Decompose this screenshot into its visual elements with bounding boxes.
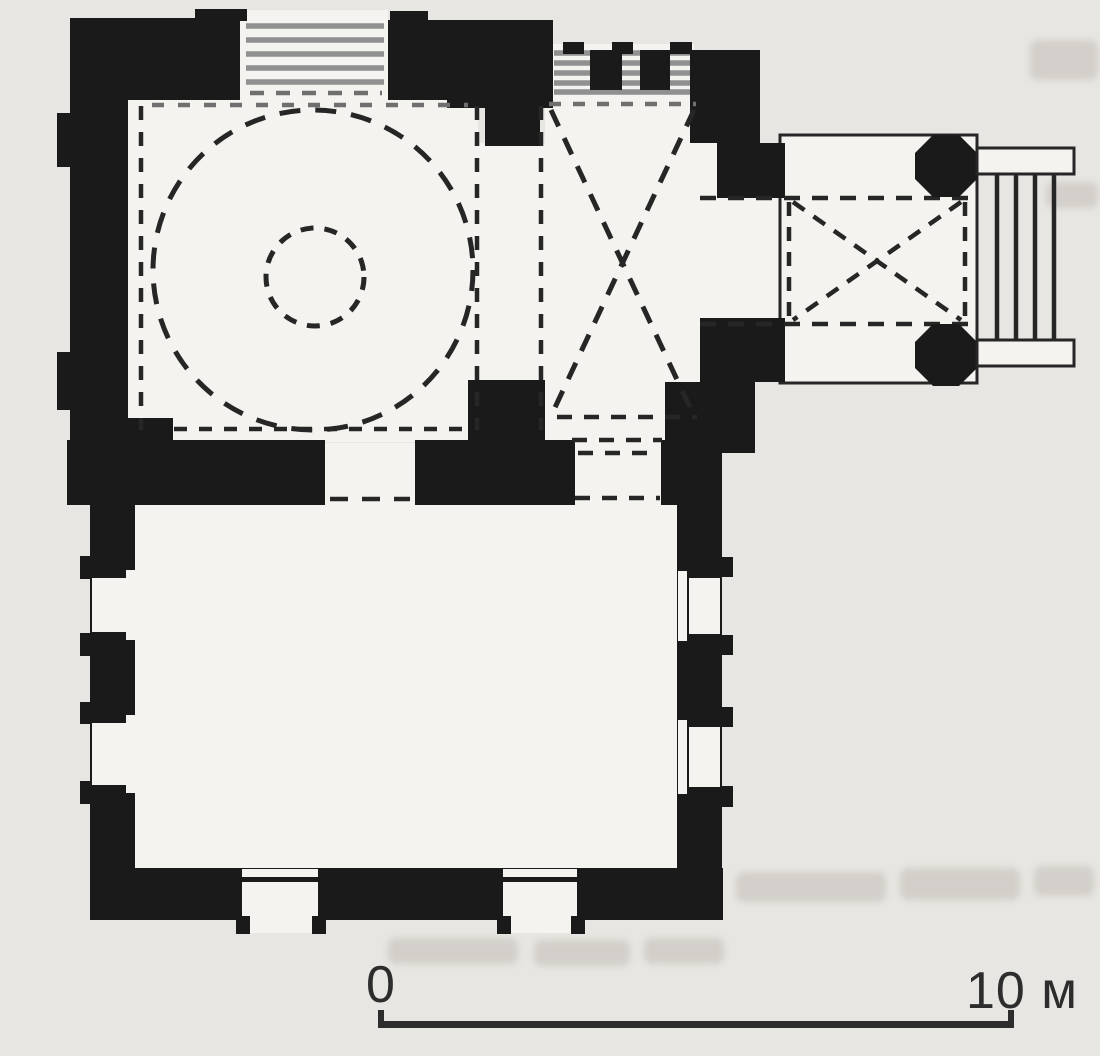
bleedthrough-smudge xyxy=(644,938,724,964)
east-window-recess xyxy=(689,578,720,634)
hall-west-buttress xyxy=(57,113,70,167)
octagonal-column xyxy=(915,135,977,197)
hall-west-buttress xyxy=(57,352,70,410)
portal-mullion xyxy=(640,50,670,90)
bleedthrough-smudge xyxy=(388,938,518,964)
south-doorway-lintel-line xyxy=(242,877,318,882)
bleedthrough-smudge xyxy=(900,868,1020,900)
west-buttress xyxy=(80,633,90,656)
west-buttress xyxy=(80,702,90,724)
bleedthrough-smudge xyxy=(1034,866,1094,896)
west-buttress xyxy=(80,781,90,804)
courtyard-east-wall-pier xyxy=(677,453,722,578)
scale-end-label: 10 м xyxy=(966,962,1078,1020)
east-buttress xyxy=(722,707,733,727)
hall-east-pier-upper xyxy=(485,104,540,146)
porch-northwest-block xyxy=(717,143,785,198)
portal-mullion xyxy=(590,50,622,90)
scanned-page: 0 10 м xyxy=(0,0,1100,1056)
scale-bar-line xyxy=(378,1021,1014,1028)
hall-north-wall-west xyxy=(70,18,240,100)
porch-southwest-block xyxy=(700,318,785,382)
south-band-center-pier xyxy=(445,440,575,505)
stair-cheek-north xyxy=(977,148,1074,174)
bleedthrough-smudge xyxy=(736,872,886,902)
hall-north-wall-tab xyxy=(195,9,247,21)
east-buttress xyxy=(722,557,733,577)
courtyard-north-doorway xyxy=(325,443,415,505)
west-arch-passage xyxy=(478,143,545,380)
east-buttress xyxy=(722,786,733,807)
courtyard-interior xyxy=(135,505,677,870)
floor-plan-drawing: 0 10 м xyxy=(0,0,1100,1056)
south-doorway-lintel-line xyxy=(503,877,577,882)
west-window-recess xyxy=(92,578,126,632)
portal-jamb-tab xyxy=(563,42,584,54)
hall-east-pier-lower xyxy=(468,380,545,444)
west-buttress xyxy=(80,556,90,579)
bleedthrough-smudge xyxy=(534,940,630,966)
octagonal-column xyxy=(915,324,977,386)
courtyard-west-wall xyxy=(90,503,135,898)
west-window-slit xyxy=(126,715,135,793)
courtyard-south-wall xyxy=(90,868,723,920)
hall-north-wall-tab xyxy=(390,11,428,23)
west-window-slit xyxy=(126,570,135,640)
scale-start-label: 0 xyxy=(366,956,396,1014)
south-doorway-jamb xyxy=(236,916,250,934)
west-window-recess xyxy=(92,723,126,785)
northeast-corner-wall xyxy=(690,50,760,143)
south-doorway-jamb xyxy=(497,916,511,934)
east-window-slit xyxy=(678,571,687,641)
domed-hall-interior xyxy=(128,100,478,442)
bleedthrough-smudge xyxy=(1030,40,1098,80)
portal-jamb-tab xyxy=(670,42,692,54)
east-buttress xyxy=(722,635,733,655)
east-window-recess xyxy=(689,727,720,787)
south-doorway-jamb xyxy=(312,916,326,934)
south-band-west xyxy=(67,440,325,505)
stair-cheek-south xyxy=(977,340,1074,366)
south-band-mid xyxy=(415,440,447,505)
east-window-slit xyxy=(678,720,687,794)
south-doorway-jamb xyxy=(571,916,585,934)
